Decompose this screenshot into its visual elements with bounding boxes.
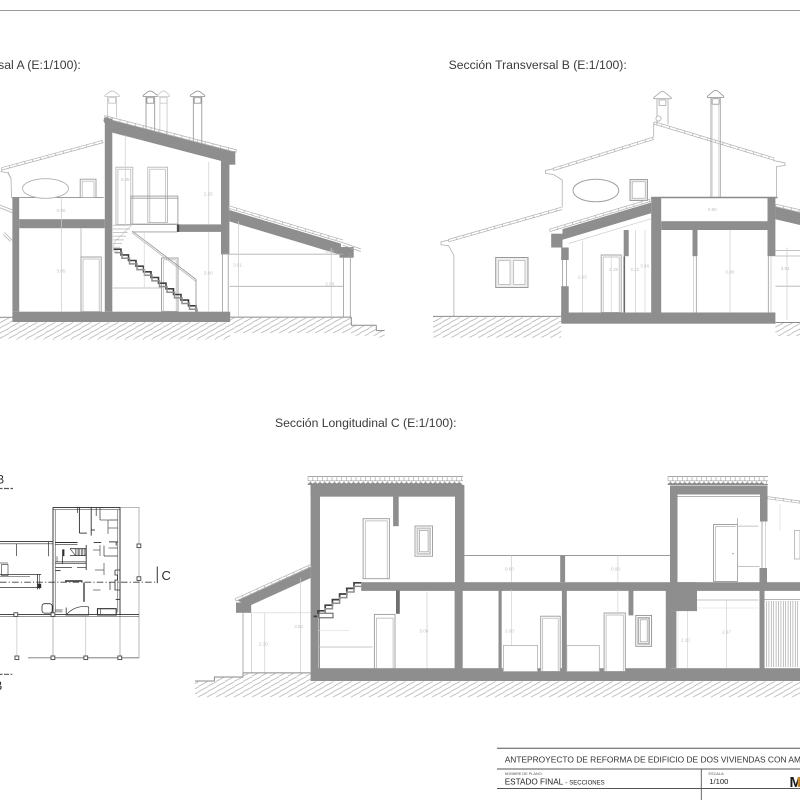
- svg-text:0.90: 0.90: [611, 567, 620, 572]
- svg-text:B: B: [0, 679, 2, 693]
- svg-text:C: C: [162, 568, 171, 583]
- svg-text:NOMBRE DE PLANO:: NOMBRE DE PLANO:: [505, 772, 543, 776]
- svg-text:3.00: 3.00: [505, 629, 514, 634]
- svg-text:3.00: 3.00: [725, 270, 734, 275]
- svg-text:Sección Transversal B (E:1/100: Sección Transversal B (E:1/100):: [449, 58, 627, 72]
- svg-text:2.63: 2.63: [578, 275, 587, 280]
- svg-text:Sección Longitudinal C (E:1/10: Sección Longitudinal C (E:1/100):: [275, 416, 457, 430]
- svg-text:3.00: 3.00: [419, 629, 428, 634]
- svg-text:0.90: 0.90: [708, 207, 717, 212]
- svg-text:0.90: 0.90: [505, 567, 514, 572]
- svg-text:3.19: 3.19: [609, 267, 618, 272]
- svg-text:0.90: 0.90: [57, 208, 66, 213]
- svg-text:2.25: 2.25: [204, 191, 213, 196]
- svg-text:ESCALA:: ESCALA:: [709, 772, 725, 776]
- svg-text:B: B: [0, 475, 5, 487]
- svg-text:3.00: 3.00: [204, 271, 213, 276]
- svg-text:2.50: 2.50: [325, 282, 334, 287]
- svg-text:Sección Transversal A (E:1/100: Sección Transversal A (E:1/100):: [0, 58, 81, 72]
- svg-text:3.61: 3.61: [233, 263, 242, 268]
- svg-text:2.97: 2.97: [722, 630, 731, 635]
- svg-text:3.61: 3.61: [294, 624, 303, 629]
- svg-text:ANTEPROYECTO DE REFORMA DE EDI: ANTEPROYECTO DE REFORMA DE EDIFICIO DE D…: [505, 755, 800, 765]
- svg-text:3.22: 3.22: [630, 267, 639, 272]
- svg-text:3.61: 3.61: [781, 266, 790, 271]
- svg-text:1/100: 1/100: [709, 777, 728, 786]
- svg-text:2.10: 2.10: [681, 638, 690, 643]
- svg-text:0.50: 0.50: [325, 249, 334, 254]
- svg-text:2.30: 2.30: [259, 641, 268, 646]
- svg-text:3.35: 3.35: [121, 177, 130, 182]
- svg-text:3.05: 3.05: [57, 269, 66, 274]
